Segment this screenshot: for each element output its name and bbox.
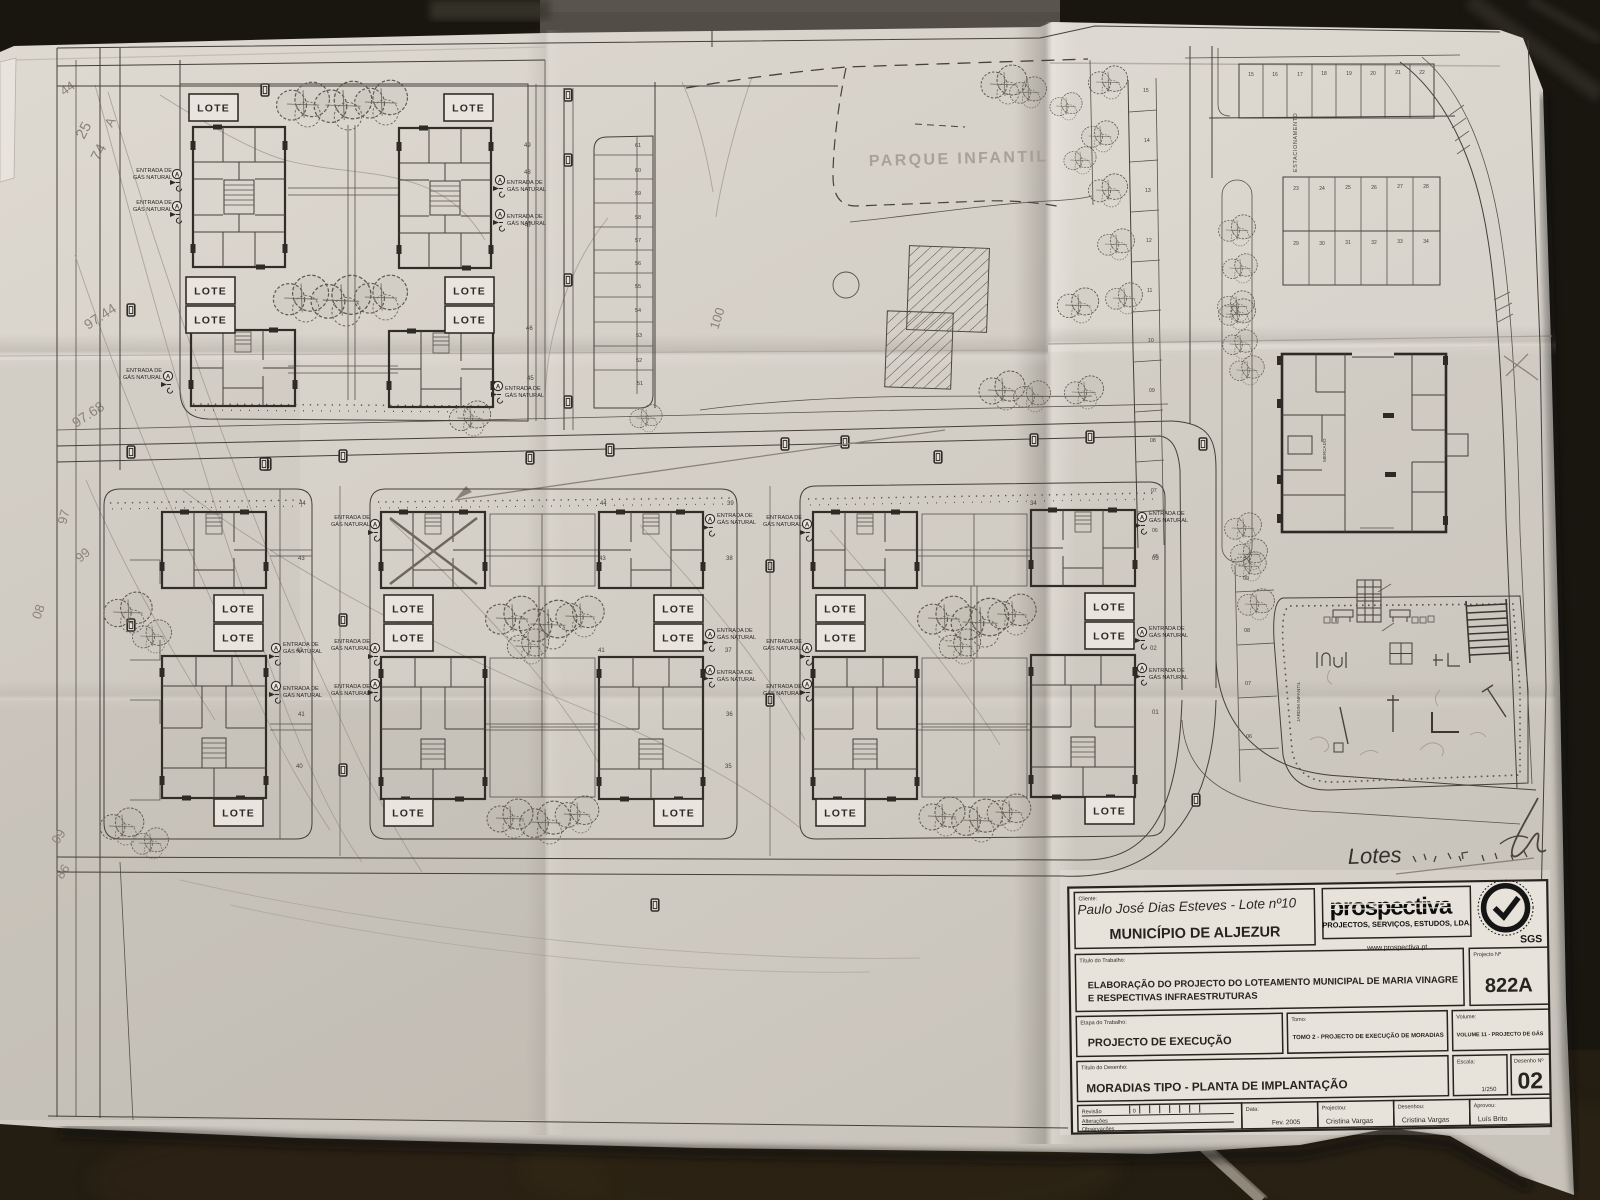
svg-text:60: 60 bbox=[635, 168, 641, 174]
svg-text:ESTACIONAMENTO: ESTACIONAMENTO bbox=[1293, 113, 1299, 172]
svg-text:37: 37 bbox=[725, 648, 732, 654]
svg-text:51: 51 bbox=[637, 381, 643, 387]
svg-text:SGS: SGS bbox=[1520, 933, 1542, 945]
svg-text:Desenhou:: Desenhou: bbox=[1398, 1104, 1425, 1110]
svg-text:28: 28 bbox=[1423, 184, 1429, 190]
svg-text:22: 22 bbox=[1419, 70, 1425, 76]
svg-text:55: 55 bbox=[635, 284, 641, 290]
svg-text:Aprovou:: Aprovou: bbox=[1474, 1103, 1497, 1109]
svg-text:08: 08 bbox=[1150, 438, 1156, 444]
svg-text:09: 09 bbox=[1243, 576, 1249, 582]
svg-text:GÁS NATURAL: GÁS NATURAL bbox=[505, 392, 544, 399]
svg-text:48: 48 bbox=[524, 170, 531, 176]
svg-text:20: 20 bbox=[1370, 71, 1376, 77]
svg-text:GÁS NATURAL: GÁS NATURAL bbox=[1149, 632, 1188, 639]
svg-text:ENTRADA DE: ENTRADA DE bbox=[1149, 668, 1185, 674]
svg-text:ENTRADA DE: ENTRADA DE bbox=[505, 386, 541, 392]
svg-text:Luís Brito: Luís Brito bbox=[1478, 1116, 1508, 1123]
svg-text:Volume:: Volume: bbox=[1456, 1014, 1476, 1020]
svg-text:GÁS NATURAL: GÁS NATURAL bbox=[123, 374, 162, 381]
svg-text:GÁS NATURAL: GÁS NATURAL bbox=[133, 174, 172, 181]
svg-text:ENTRADA DE: ENTRADA DE bbox=[334, 684, 370, 690]
svg-text:ENTRADA DE: ENTRADA DE bbox=[136, 200, 172, 206]
svg-text:23: 23 bbox=[1293, 186, 1299, 192]
svg-text:MUNICÍPIO DE ALJEZUR: MUNICÍPIO DE ALJEZUR bbox=[1109, 923, 1281, 943]
svg-text:42: 42 bbox=[296, 648, 303, 654]
svg-text:GÁS NATURAL: GÁS NATURAL bbox=[763, 521, 802, 528]
svg-text:MERCADO: MERCADO bbox=[1322, 438, 1327, 462]
svg-text:Projectou:: Projectou: bbox=[1322, 1105, 1347, 1111]
svg-text:43: 43 bbox=[298, 556, 305, 562]
svg-text:44: 44 bbox=[600, 501, 607, 507]
svg-text:07: 07 bbox=[1245, 681, 1251, 687]
svg-text:ENTRADA DE: ENTRADA DE bbox=[334, 639, 370, 645]
svg-text:36: 36 bbox=[726, 712, 733, 718]
svg-text:34: 34 bbox=[1423, 239, 1429, 245]
svg-text:40: 40 bbox=[296, 764, 303, 770]
svg-text:06: 06 bbox=[1152, 528, 1158, 534]
svg-text:Fev. 2005: Fev. 2005 bbox=[1272, 1119, 1301, 1126]
svg-text:19: 19 bbox=[1346, 71, 1352, 77]
svg-text:Alterações: Alterações bbox=[1082, 1119, 1108, 1125]
svg-text:Cristina Vargas: Cristina Vargas bbox=[1402, 1117, 1450, 1125]
svg-text:Lotes: Lotes bbox=[1347, 842, 1402, 869]
svg-text:30: 30 bbox=[1319, 241, 1325, 247]
svg-text:Projecto Nº: Projecto Nº bbox=[1473, 951, 1501, 958]
svg-text:27: 27 bbox=[1397, 184, 1403, 190]
svg-text:www.prospectiva.pt: www.prospectiva.pt bbox=[1366, 944, 1427, 952]
svg-text:06: 06 bbox=[1246, 734, 1252, 740]
svg-text:GÁS NATURAL: GÁS NATURAL bbox=[283, 692, 322, 699]
svg-text:08: 08 bbox=[1244, 628, 1250, 634]
svg-text:Data:: Data: bbox=[1246, 1107, 1260, 1113]
svg-text:822A: 822A bbox=[1485, 974, 1533, 997]
svg-text:01: 01 bbox=[1152, 710, 1159, 716]
svg-text:GÁS NATURAL: GÁS NATURAL bbox=[763, 645, 802, 652]
svg-text:16: 16 bbox=[1272, 72, 1278, 78]
svg-text:03: 03 bbox=[1152, 556, 1159, 562]
svg-text:39: 39 bbox=[727, 501, 734, 507]
svg-text:ENTRADA DE: ENTRADA DE bbox=[766, 639, 802, 645]
svg-text:Desenho Nº: Desenho Nº bbox=[1514, 1057, 1544, 1064]
svg-text:41: 41 bbox=[598, 648, 605, 654]
svg-text:GÁS NATURAL: GÁS NATURAL bbox=[331, 521, 370, 528]
svg-text:Tomo:: Tomo: bbox=[1291, 1017, 1307, 1023]
svg-text:GÁS NATURAL: GÁS NATURAL bbox=[717, 634, 756, 641]
svg-text:ENTRADA DE: ENTRADA DE bbox=[717, 513, 753, 519]
svg-text:56: 56 bbox=[635, 261, 641, 267]
svg-text:33: 33 bbox=[1397, 239, 1403, 245]
svg-text:15: 15 bbox=[1248, 72, 1254, 78]
svg-text:GÁS NATURAL: GÁS NATURAL bbox=[331, 690, 370, 697]
svg-text:Revisão: Revisão bbox=[1082, 1109, 1102, 1115]
svg-text:14: 14 bbox=[1144, 138, 1150, 144]
svg-text:GÁS NATURAL: GÁS NATURAL bbox=[1149, 517, 1188, 524]
svg-text:41: 41 bbox=[298, 712, 305, 718]
svg-text:32: 32 bbox=[1371, 240, 1377, 246]
svg-text:ENTRADA DE: ENTRADA DE bbox=[283, 686, 319, 692]
svg-text:09: 09 bbox=[1149, 388, 1155, 394]
svg-text:12: 12 bbox=[1146, 238, 1152, 244]
svg-text:58: 58 bbox=[635, 215, 641, 221]
svg-text:Etapa do Trabalho:: Etapa do Trabalho: bbox=[1080, 1020, 1127, 1027]
svg-text:Observações: Observações bbox=[1082, 1126, 1115, 1133]
svg-text:54: 54 bbox=[635, 308, 641, 314]
svg-text:ENTRADA DE: ENTRADA DE bbox=[1149, 511, 1185, 517]
svg-text:ENTRADA DE: ENTRADA DE bbox=[766, 684, 802, 690]
svg-text:Título do Desenho:: Título do Desenho: bbox=[1081, 1065, 1128, 1072]
svg-text:ENTRADA DE: ENTRADA DE bbox=[717, 670, 753, 676]
svg-text:GÁS NATURAL: GÁS NATURAL bbox=[331, 645, 370, 652]
svg-text:44: 44 bbox=[299, 501, 306, 507]
svg-text:Cristina Vargas: Cristina Vargas bbox=[1326, 1118, 1374, 1126]
svg-text:prospectiva: prospectiva bbox=[1329, 893, 1453, 922]
svg-text:25: 25 bbox=[1345, 185, 1351, 191]
svg-text:10: 10 bbox=[1148, 338, 1154, 344]
svg-text:0: 0 bbox=[1133, 1109, 1136, 1115]
svg-text:46: 46 bbox=[526, 326, 533, 332]
svg-text:26: 26 bbox=[1371, 185, 1377, 191]
svg-text:1/250: 1/250 bbox=[1481, 1087, 1497, 1093]
svg-text:43: 43 bbox=[599, 556, 606, 562]
svg-text:34: 34 bbox=[1030, 501, 1037, 507]
svg-text:15: 15 bbox=[1143, 88, 1149, 94]
svg-text:47: 47 bbox=[525, 223, 532, 229]
svg-text:17: 17 bbox=[1297, 72, 1303, 78]
svg-text:Título do Trabalho:: Título do Trabalho: bbox=[1079, 958, 1125, 965]
svg-text:ENTRADA DE: ENTRADA DE bbox=[126, 368, 162, 374]
svg-text:ENTRADA DE: ENTRADA DE bbox=[507, 214, 543, 220]
svg-text:VOLUME 11 - PROJECTO DE GÁS: VOLUME 11 - PROJECTO DE GÁS bbox=[1457, 1030, 1544, 1038]
svg-text:29: 29 bbox=[1293, 241, 1299, 247]
svg-text:13: 13 bbox=[1145, 188, 1151, 194]
svg-text:GÁS NATURAL: GÁS NATURAL bbox=[763, 690, 802, 697]
svg-text:52: 52 bbox=[636, 358, 642, 364]
svg-text:38: 38 bbox=[726, 556, 733, 562]
svg-text:61: 61 bbox=[635, 143, 641, 149]
svg-text:49: 49 bbox=[524, 143, 531, 149]
svg-text:Escala:: Escala: bbox=[1457, 1059, 1476, 1065]
svg-text:31: 31 bbox=[1345, 240, 1351, 246]
svg-text:11: 11 bbox=[1147, 288, 1152, 294]
svg-text:45: 45 bbox=[527, 376, 534, 382]
svg-text:57: 57 bbox=[635, 238, 641, 244]
svg-text:GÁS NATURAL: GÁS NATURAL bbox=[717, 676, 756, 683]
svg-text:GÁS NATURAL: GÁS NATURAL bbox=[133, 206, 172, 213]
svg-text:18: 18 bbox=[1321, 71, 1327, 77]
svg-text:21: 21 bbox=[1395, 70, 1401, 76]
svg-text:02: 02 bbox=[1517, 1067, 1543, 1093]
svg-text:35: 35 bbox=[725, 764, 732, 770]
svg-text:GÁS NATURAL: GÁS NATURAL bbox=[717, 519, 756, 526]
svg-text:ENTRADA DE: ENTRADA DE bbox=[717, 628, 753, 634]
svg-text:59: 59 bbox=[635, 191, 641, 197]
svg-text:ENTRADA DE: ENTRADA DE bbox=[507, 180, 543, 186]
svg-text:02: 02 bbox=[1150, 646, 1157, 652]
svg-text:53: 53 bbox=[636, 333, 642, 339]
svg-text:ENTRADA DE: ENTRADA DE bbox=[334, 515, 370, 521]
svg-text:JARDIM INFANTIL: JARDIM INFANTIL bbox=[1296, 681, 1302, 722]
svg-text:ENTRADA DE: ENTRADA DE bbox=[1149, 626, 1185, 632]
svg-text:24: 24 bbox=[1319, 186, 1325, 192]
svg-text:GÁS NATURAL: GÁS NATURAL bbox=[507, 186, 546, 193]
svg-text:GÁS NATURAL: GÁS NATURAL bbox=[1149, 674, 1188, 681]
svg-text:PROJECTO DE EXECUÇÃO: PROJECTO DE EXECUÇÃO bbox=[1088, 1034, 1233, 1049]
svg-text:ENTRADA DE: ENTRADA DE bbox=[766, 515, 802, 521]
svg-text:ENTRADA DE: ENTRADA DE bbox=[136, 168, 172, 174]
